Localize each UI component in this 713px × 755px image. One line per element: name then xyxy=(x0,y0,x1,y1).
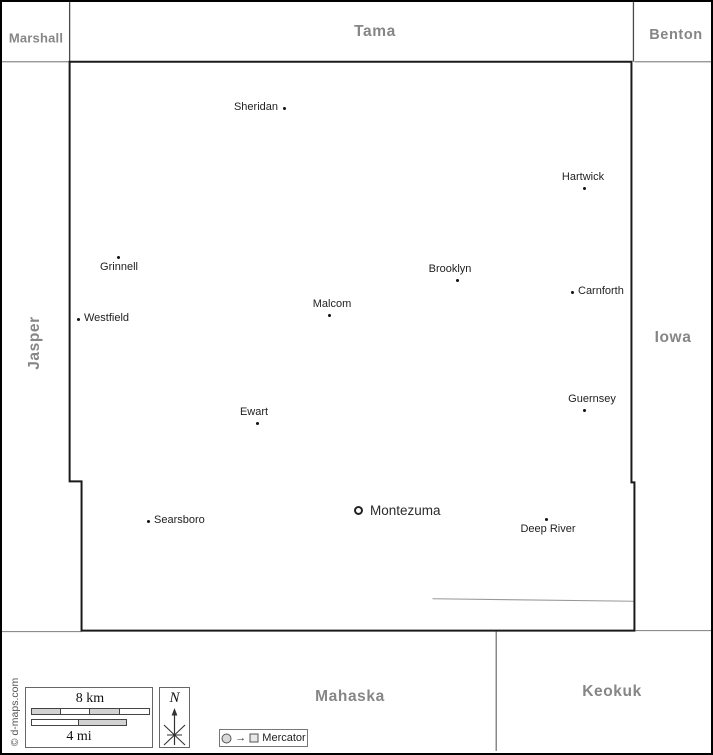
town-label-deep-river: Deep River xyxy=(520,523,575,536)
town-label-montezuma: Montezuma xyxy=(370,502,441,519)
square-projection-icon xyxy=(249,733,259,743)
town-label-brooklyn: Brooklyn xyxy=(429,263,472,276)
scale-km-label: 8 km xyxy=(76,691,104,707)
scale-km-seg xyxy=(61,709,90,714)
town-label-ewart: Ewart xyxy=(240,406,268,419)
copyright-text: © d-maps.com xyxy=(9,678,21,746)
arrow-icon: → xyxy=(235,733,246,744)
globe-icon xyxy=(221,733,232,744)
border-inner-segment xyxy=(433,599,634,601)
town-dot-ewart xyxy=(256,422,259,425)
town-label-malcom: Malcom xyxy=(313,298,352,311)
boundary-lines xyxy=(2,2,711,753)
county-label-benton: Benton xyxy=(649,27,703,43)
scale-km-seg xyxy=(32,709,61,714)
town-dot-malcom xyxy=(328,314,331,317)
scale-km-seg xyxy=(120,709,149,714)
county-label-keokuk: Keokuk xyxy=(582,683,642,701)
town-dot-searsboro xyxy=(147,520,150,523)
county-label-tama: Tama xyxy=(354,23,396,41)
projection-box: → Mercator xyxy=(219,729,308,747)
town-dot-westfield xyxy=(77,318,80,321)
north-arrow-icon xyxy=(160,707,189,747)
town-label-hartwick: Hartwick xyxy=(562,171,604,184)
scale-bar-box: 8 km 4 mi xyxy=(25,687,153,748)
town-dot-sheridan xyxy=(283,107,286,110)
scale-mi-seg xyxy=(79,720,126,725)
town-dot-brooklyn xyxy=(456,279,459,282)
scale-km-bar xyxy=(31,708,150,715)
scale-mi-bar xyxy=(31,719,127,726)
county-label-jasper: Jasper xyxy=(26,316,44,370)
county-label-iowa: Iowa xyxy=(655,329,692,347)
town-dot-hartwick xyxy=(583,187,586,190)
county-label-marshall: Marshall xyxy=(9,31,63,46)
county-outline xyxy=(70,62,635,631)
town-dot-grinnell xyxy=(117,256,120,259)
north-box: N xyxy=(159,687,190,748)
county-label-mahaska: Mahaska xyxy=(315,688,385,706)
town-label-grinnell: Grinnell xyxy=(100,261,138,274)
town-label-sheridan: Sheridan xyxy=(234,101,278,114)
county-seat-marker-montezuma xyxy=(354,506,363,515)
town-dot-carnforth xyxy=(571,291,574,294)
north-label: N xyxy=(169,690,179,707)
town-dot-guernsey xyxy=(583,409,586,412)
scale-mi-seg xyxy=(32,720,79,725)
town-dot-deep-river xyxy=(545,518,548,521)
scale-mi-label: 4 mi xyxy=(66,729,91,745)
town-label-guernsey: Guernsey xyxy=(568,393,616,406)
town-label-carnforth: Carnforth xyxy=(578,285,624,298)
scale-km-seg xyxy=(90,709,120,714)
projection-label: Mercator xyxy=(262,732,305,744)
town-label-searsboro: Searsboro xyxy=(154,514,205,527)
county-map: Marshall Tama Benton Jasper Iowa Mahaska… xyxy=(0,0,713,755)
town-label-westfield: Westfield xyxy=(84,312,129,325)
